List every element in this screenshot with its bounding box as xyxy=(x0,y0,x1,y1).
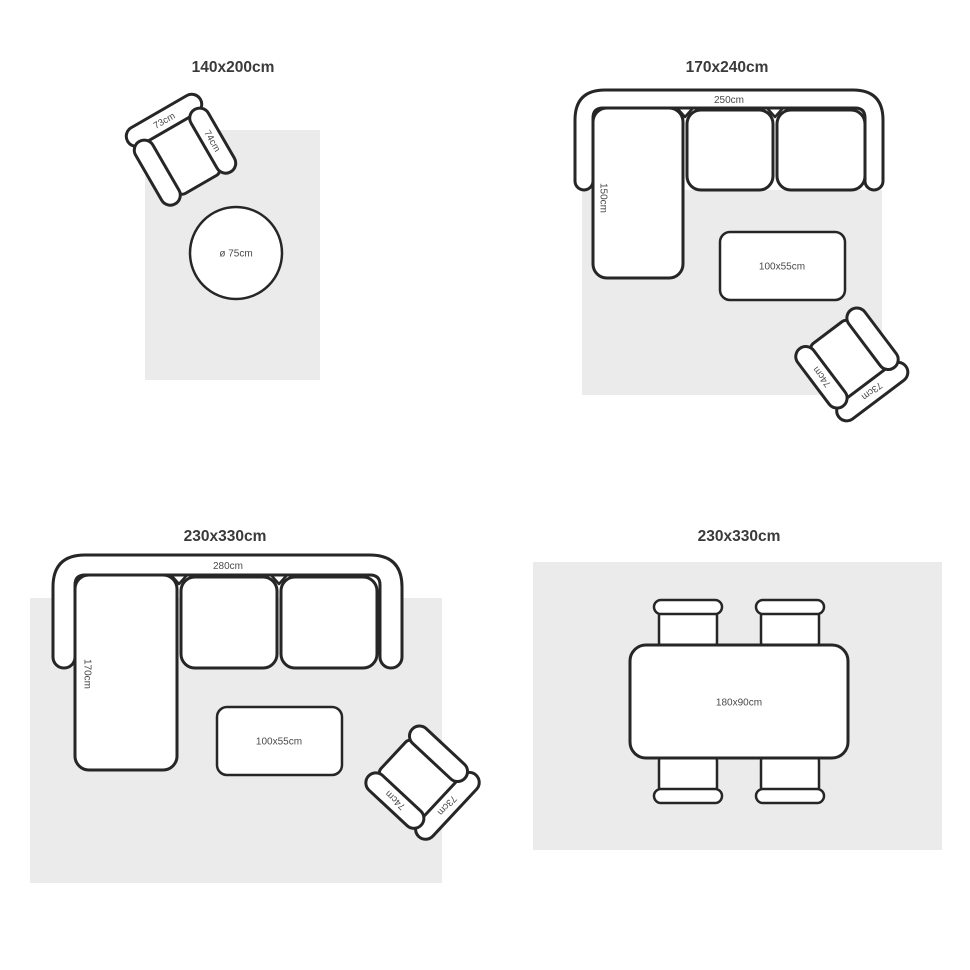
sofa-cushion xyxy=(687,110,773,190)
sofa-cushion xyxy=(281,577,377,668)
panel-rug-170x240: 170x240cm 250cm 150cm 100x55cm 73cm 74cm xyxy=(575,59,912,425)
sofa-cushion xyxy=(777,110,865,190)
panel-title: 140x200cm xyxy=(192,59,275,76)
coffee-table-label: 100x55cm xyxy=(256,737,302,748)
dining-chair-backrest xyxy=(756,600,824,614)
dining-table-label: 180x90cm xyxy=(716,698,762,709)
sofa-width-label: 250cm xyxy=(714,95,744,106)
dining-chair-backrest xyxy=(756,789,824,803)
rug-size-guide-diagram: 140x200cm 73cm 74cm ø 75cm 170x240cm 250… xyxy=(0,0,970,970)
coffee-table-label: 100x55cm xyxy=(759,262,805,273)
sofa-depth-label-group: 150cm xyxy=(598,183,609,213)
sofa-depth-label: 170cm xyxy=(82,659,93,689)
sofa-depth-label-group: 170cm xyxy=(82,659,93,689)
panel-rug-230x330-sofa: 230x330cm 280cm 170cm 100x55cm 73cm 74cm xyxy=(30,528,483,883)
dining-chair-backrest xyxy=(654,789,722,803)
sofa-depth-label: 150cm xyxy=(598,183,609,213)
dining-chair-backrest xyxy=(654,600,722,614)
panel-title: 230x330cm xyxy=(184,528,267,545)
round-table-label: ø 75cm xyxy=(219,249,252,260)
sofa-cushion xyxy=(181,577,277,668)
sofa-width-label: 280cm xyxy=(213,561,243,572)
panel-rug-140x200: 140x200cm 73cm 74cm ø 75cm xyxy=(123,59,320,380)
panel-title: 170x240cm xyxy=(686,59,769,76)
panel-rug-230x330-dining: 230x330cm 180x90cm xyxy=(533,528,942,850)
panel-title: 230x330cm xyxy=(698,528,781,545)
